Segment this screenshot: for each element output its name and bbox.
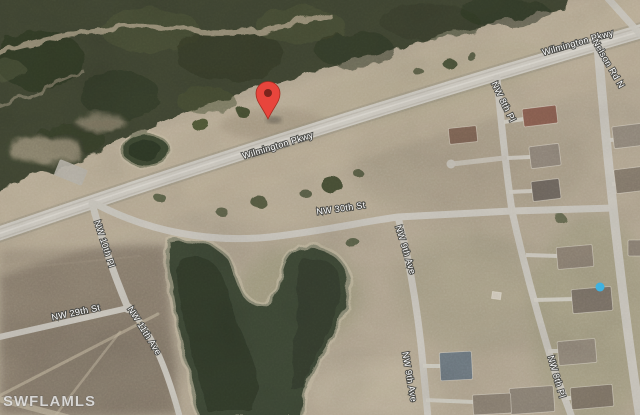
- pin-center-dot: [264, 89, 272, 97]
- mls-watermark: SWFLAMLS: [3, 393, 96, 410]
- satellite-map[interactable]: Wilmington Pkwy Wilmington Pkwy Nelson R…: [0, 0, 640, 415]
